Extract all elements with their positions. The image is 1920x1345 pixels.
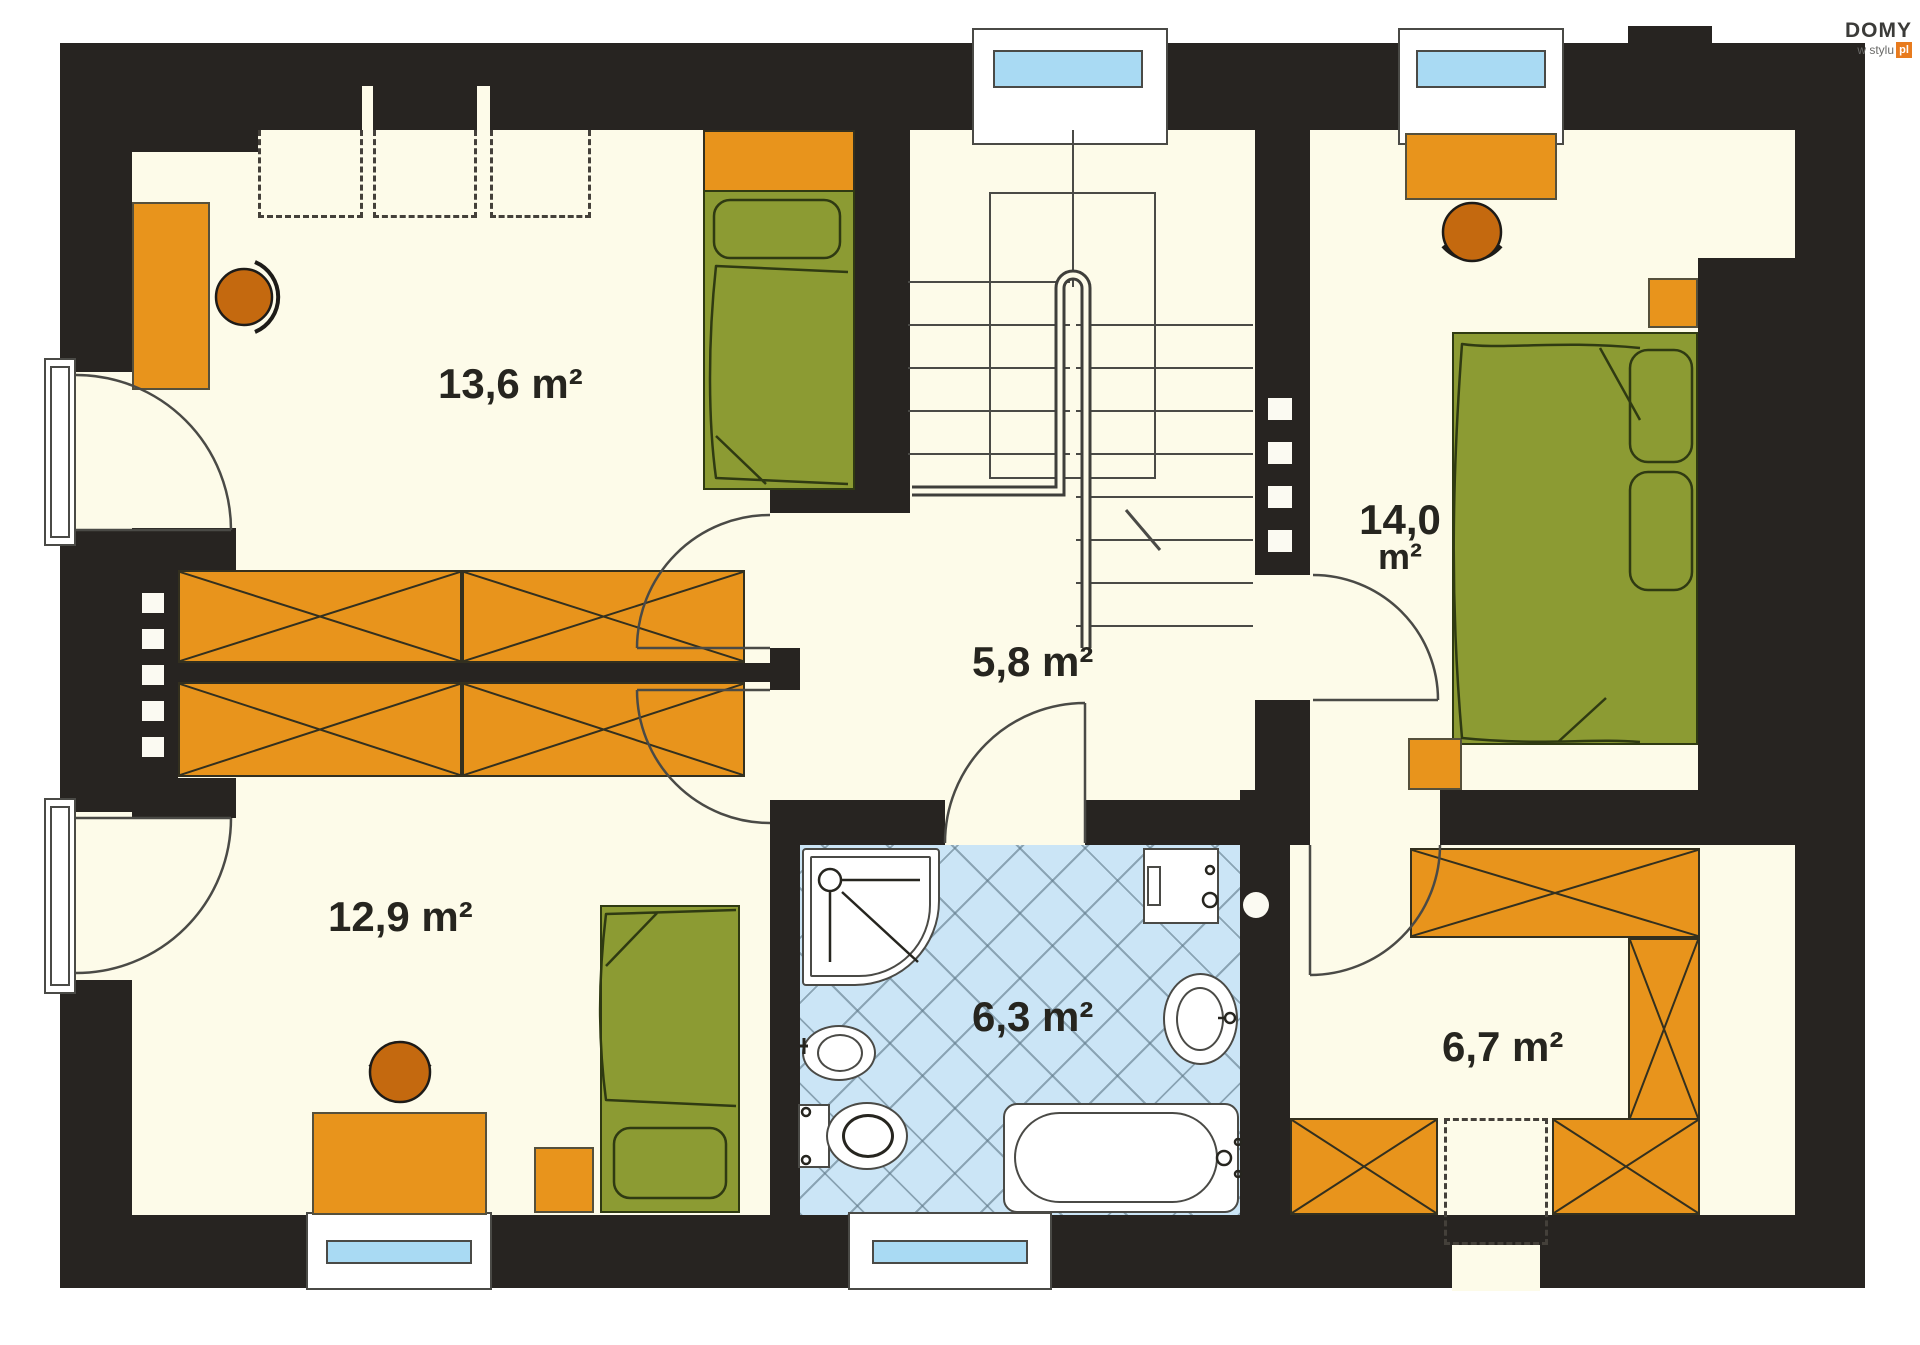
wall-top bbox=[60, 43, 1865, 130]
wall-left-middle bbox=[60, 530, 132, 812]
knee-gap-2 bbox=[142, 629, 164, 649]
counter-x-bottom-left bbox=[1290, 1118, 1438, 1215]
railing-gap-3 bbox=[1268, 486, 1292, 508]
knee-wall-upper-block bbox=[132, 528, 236, 572]
wall-bedroom-dressing-right bbox=[1440, 790, 1795, 845]
bidet-bowl bbox=[817, 1034, 863, 1072]
wall-circle bbox=[1243, 892, 1269, 918]
bathtub-inner bbox=[1014, 1112, 1218, 1203]
label-dressing-room: 6,7 m² bbox=[1442, 1023, 1563, 1071]
counter-x-top bbox=[1410, 848, 1700, 938]
railing-gap-4 bbox=[1268, 530, 1292, 552]
wall-notch-2 bbox=[477, 86, 490, 130]
stool-bottom-left bbox=[534, 1147, 594, 1213]
niche-wall-gap bbox=[1452, 1245, 1540, 1291]
knee-gap-4 bbox=[142, 701, 164, 721]
brand-tagline: w stylu bbox=[1857, 43, 1894, 57]
knee-wall-lower-block bbox=[132, 778, 236, 818]
bed-single-1-headboard bbox=[703, 130, 855, 192]
desk-bottom-left bbox=[312, 1112, 487, 1215]
wardrobe-x-top-b bbox=[462, 570, 745, 663]
wall-rooms-divider bbox=[150, 663, 770, 682]
washbasin-bowl bbox=[1176, 987, 1224, 1051]
knee-gap-3 bbox=[142, 665, 164, 685]
wall-right-thick bbox=[1698, 258, 1798, 790]
dashed-storage-2 bbox=[373, 130, 477, 218]
washing-machine-door bbox=[1147, 866, 1161, 906]
bed-single-2 bbox=[600, 905, 740, 1213]
label-bedroom-right-value: 14,0 bbox=[1325, 500, 1475, 540]
desk-top-left bbox=[132, 202, 210, 390]
dashed-niche bbox=[1444, 1118, 1548, 1245]
wardrobe-x-bottom-b bbox=[462, 682, 745, 777]
brand-suffix: pl bbox=[1896, 42, 1912, 58]
floor-plan: 13,6 m² 14,0 m² 5,8 m² 12,9 m² 6,3 m² 6,… bbox=[0, 0, 1920, 1345]
wall-bedroom-dressing-left bbox=[1240, 790, 1310, 845]
label-bedroom-top-left: 13,6 m² bbox=[438, 360, 583, 408]
wall-stairwell-right-upper bbox=[1255, 130, 1310, 390]
knee-gap-5 bbox=[142, 737, 164, 757]
label-bedroom-right-unit: m² bbox=[1325, 540, 1475, 574]
window-left-lower-inner bbox=[50, 806, 70, 986]
label-bathroom: 6,3 m² bbox=[972, 993, 1093, 1041]
desk-right bbox=[1405, 133, 1557, 200]
label-bedroom-bottom-left: 12,9 m² bbox=[328, 893, 473, 941]
brand-logo: DOMY w stylupl bbox=[1712, 20, 1912, 59]
window-bottom-bathroom-glass bbox=[872, 1240, 1028, 1264]
railing-gap-2 bbox=[1268, 442, 1292, 464]
bed-double bbox=[1452, 332, 1698, 745]
wall-right bbox=[1795, 43, 1865, 1288]
label-hall: 5,8 m² bbox=[972, 638, 1093, 686]
toilet-bowl-inner bbox=[842, 1114, 894, 1158]
wall-bathroom-left bbox=[770, 823, 800, 1215]
wardrobe-x-bottom-a bbox=[178, 682, 462, 777]
chimney bbox=[1628, 26, 1712, 50]
brand-name: DOMY bbox=[1712, 20, 1912, 41]
window-top-bedroom-glass bbox=[1416, 50, 1546, 88]
counter-x-bottom-right bbox=[1552, 1118, 1700, 1215]
wall-bathroom-top-left bbox=[770, 800, 945, 845]
wall-stairwell-left bbox=[855, 43, 910, 513]
window-bottom-bedroom-glass bbox=[326, 1240, 472, 1264]
window-left-upper-inner bbox=[50, 366, 70, 538]
wall-hall-right-lower bbox=[1255, 700, 1310, 790]
wardrobe-x-top-a bbox=[178, 570, 462, 663]
nightstand-right-top bbox=[1648, 278, 1698, 328]
railing-gap-1 bbox=[1268, 398, 1292, 420]
wall-left-upper bbox=[60, 43, 132, 372]
bed-single-1 bbox=[703, 190, 855, 490]
dashed-storage-3 bbox=[490, 130, 591, 218]
wall-bathroom-top-right bbox=[1085, 800, 1240, 845]
wall-notch-1 bbox=[362, 86, 373, 130]
dashed-storage-1 bbox=[258, 130, 363, 218]
label-bedroom-right: 14,0 m² bbox=[1325, 500, 1475, 574]
wall-hall-left-stub bbox=[770, 648, 800, 690]
window-top-stairwell-glass bbox=[993, 50, 1143, 88]
stool-bed-foot bbox=[1408, 738, 1462, 790]
wall-hall-top-stub bbox=[770, 488, 910, 513]
knee-gap-1 bbox=[142, 593, 164, 613]
counter-x-right bbox=[1628, 938, 1700, 1120]
